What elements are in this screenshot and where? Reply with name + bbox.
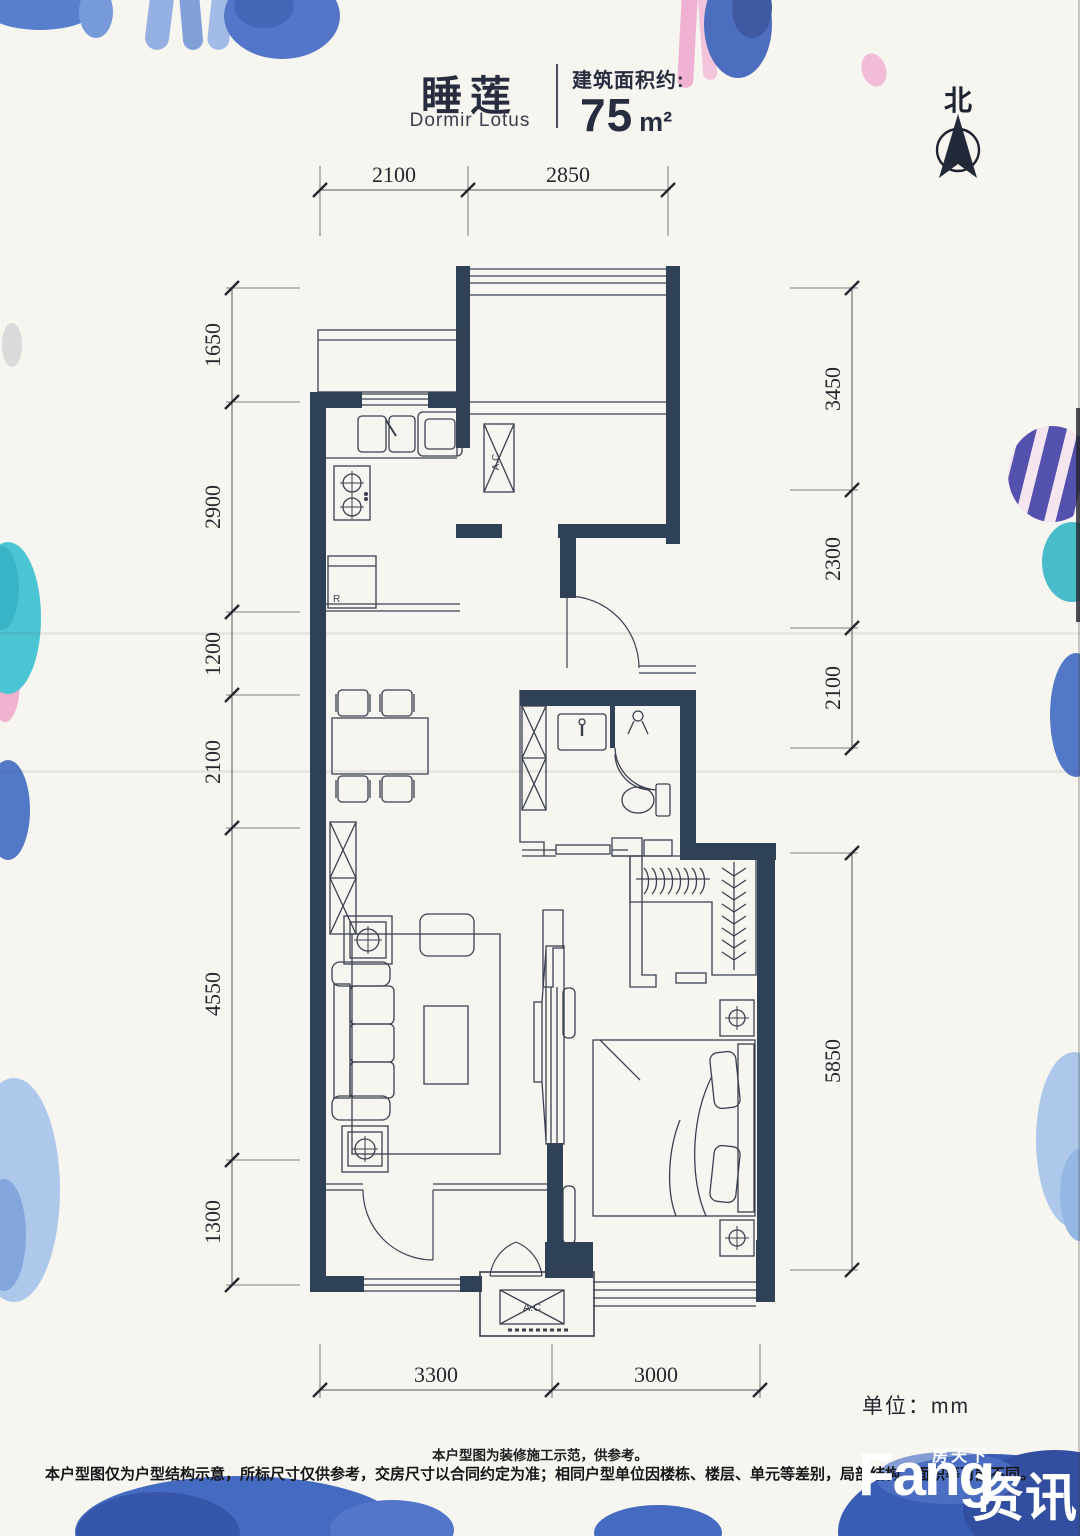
dining-chair [380,776,414,802]
dining-table [332,718,428,774]
unit-label: 单位：mm [862,1390,970,1420]
dim-top-1: 2850 [546,162,590,187]
bed [593,1040,755,1216]
hangers [644,868,705,894]
ac-indoor-label: A.C [491,454,502,471]
bathroom-sliding-door [556,845,610,854]
dining-chair [336,776,370,802]
dim-left-1: 2900 [200,485,225,529]
compass-needle-icon [939,114,977,178]
plant-table [342,1126,388,1172]
dim-right-2: 2100 [820,666,845,710]
dim-right-1: 2300 [820,537,845,581]
dim-bottom-1: 3000 [634,1362,678,1387]
floor-plan-svg: 北 [0,0,1080,1536]
pillow [709,1145,741,1203]
sliding-panel [563,1186,575,1244]
toilet [622,784,670,816]
dining-chair [380,690,414,716]
kitchen-sink-basin [389,416,415,452]
dim-left-0: 1650 [200,323,225,367]
ac-outdoor-label: A.C [523,1302,541,1314]
scanned-floorplan-page: { "header": { "title_cn": "睡莲", "title_e… [0,0,1080,1536]
sofa [332,962,394,1120]
pillow [709,1051,741,1109]
dim-left-5: 1300 [200,1200,225,1244]
wardrobe [630,856,756,983]
bath-cabinet [612,838,642,856]
dim-left-4: 4550 [200,972,225,1016]
entry-door [567,596,639,668]
gas-stove [334,466,370,520]
dining-chair [336,690,370,716]
dim-left-2: 1200 [200,632,225,676]
nightstand [720,1220,754,1256]
living-room-furniture [332,914,575,1244]
kitchen-sink-basin [358,416,386,452]
tv-console [534,946,564,1144]
north-arrow: 北 [937,85,979,178]
nightstand [720,1000,754,1036]
thin-structure [318,295,696,1190]
bath-cabinet [644,840,672,856]
dim-bottom-0: 3300 [414,1362,458,1387]
shelf-cabinet [330,822,356,934]
balcony-double-door [490,1242,542,1276]
dining-set [330,690,428,934]
living-balcony-door [363,1190,433,1260]
dim-left-3: 2100 [200,740,225,784]
bench [676,973,706,983]
kitchen-fixtures [328,412,462,608]
ottoman [420,914,474,956]
north-label: 北 [944,85,972,116]
fridge-label: R [333,594,340,605]
dim-right-3: 5850 [820,1039,845,1083]
shower [615,711,656,790]
fang-watermark: 房天下 Fang 资讯 [856,1432,1080,1534]
dim-top-0: 2100 [372,162,416,187]
tv [534,1002,542,1082]
bedroom-furniture [593,1000,755,1256]
coffee-table [424,1006,468,1084]
sliding-panel [563,988,575,1038]
dim-right-0: 3450 [820,367,845,411]
storage-column [522,706,546,810]
kitchen-bay-window [318,330,464,392]
washbasin [558,714,606,750]
watermark-brand-cn: 资讯 [972,1456,1078,1531]
bathroom-fixtures [522,706,672,856]
rug [352,934,500,1154]
